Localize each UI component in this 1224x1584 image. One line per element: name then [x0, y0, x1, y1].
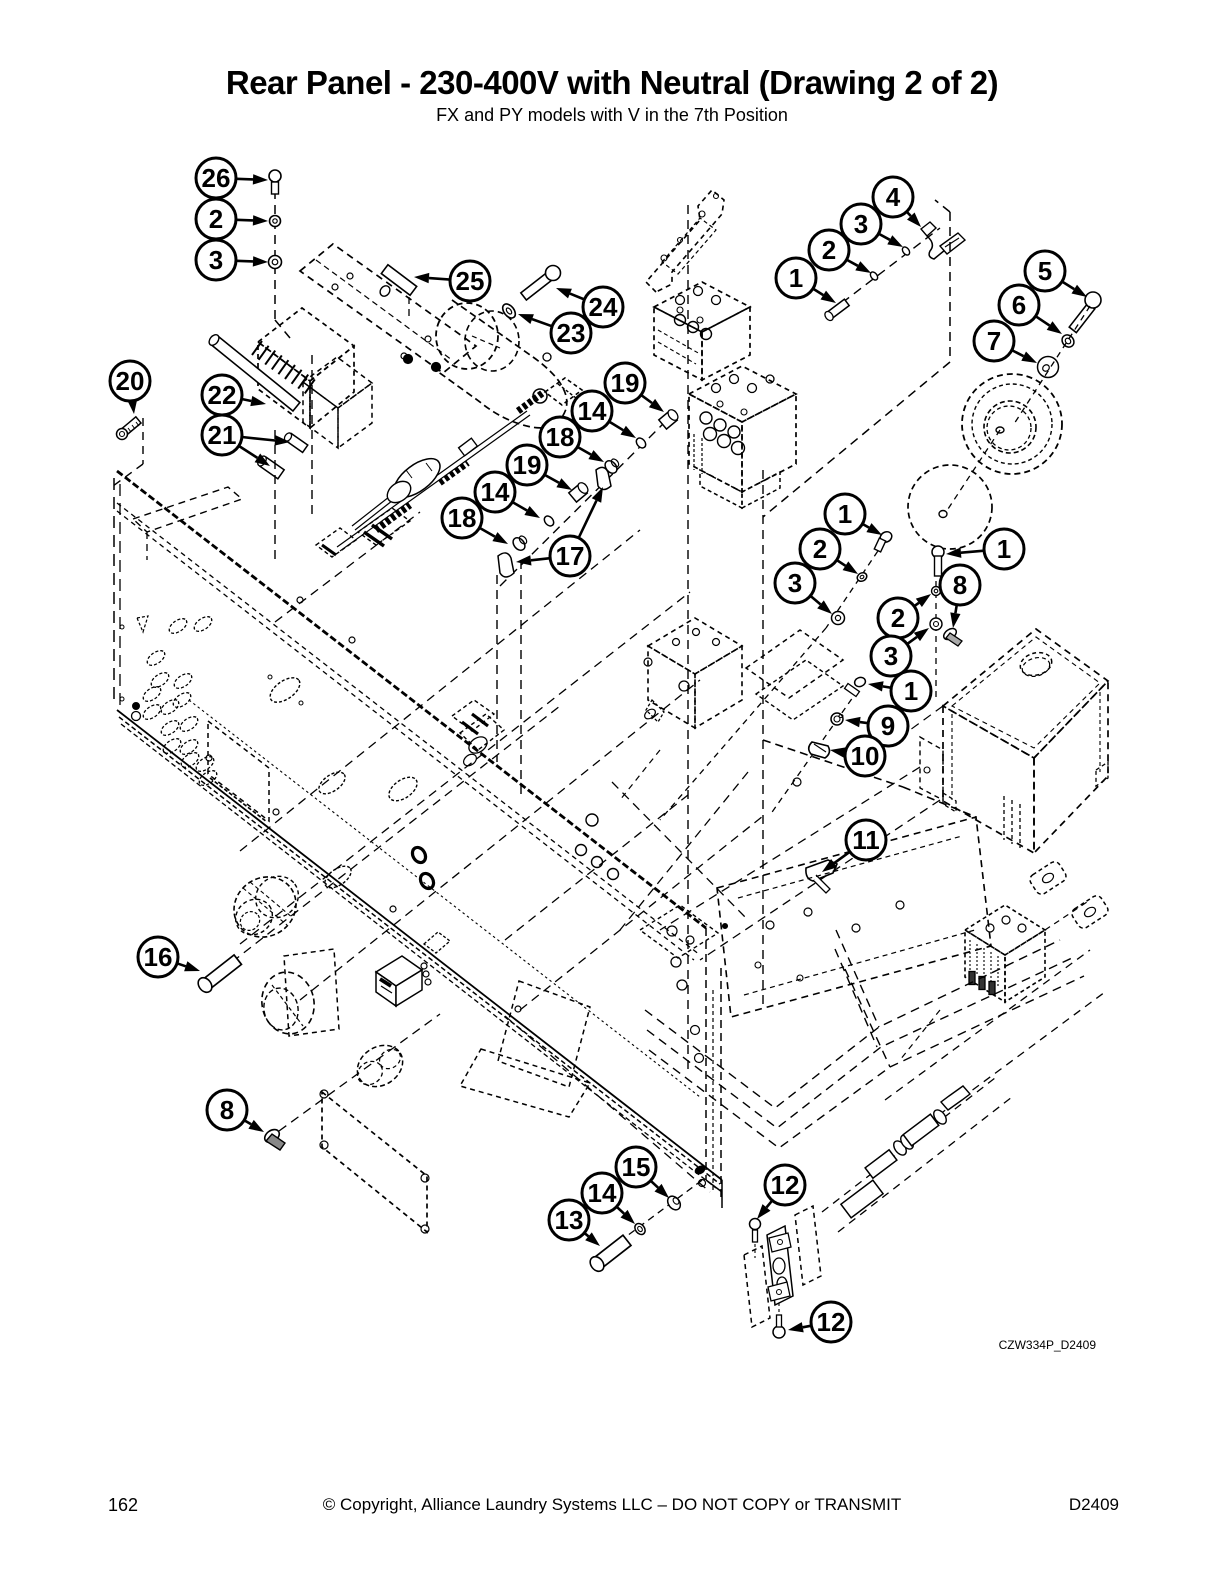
svg-text:7: 7 [987, 326, 1001, 356]
svg-text:3: 3 [884, 641, 898, 671]
svg-text:18: 18 [546, 422, 575, 452]
svg-text:8: 8 [953, 570, 967, 600]
svg-text:16: 16 [144, 942, 173, 972]
svg-text:1: 1 [789, 263, 803, 293]
svg-text:162: 162 [108, 1495, 138, 1515]
svg-text:D2409: D2409 [1069, 1495, 1119, 1514]
svg-text:FX and PY models with V in the: FX and PY models with V in the 7th Posit… [436, 105, 788, 125]
svg-text:22: 22 [208, 380, 237, 410]
svg-text:2: 2 [813, 534, 827, 564]
svg-text:2: 2 [209, 204, 223, 234]
svg-text:11: 11 [852, 825, 880, 855]
svg-text:14: 14 [578, 396, 607, 426]
svg-text:5: 5 [1038, 256, 1052, 286]
svg-text:17: 17 [556, 541, 585, 571]
svg-text:26: 26 [202, 163, 231, 193]
svg-text:19: 19 [611, 368, 640, 398]
svg-text:3: 3 [854, 209, 868, 239]
svg-text:21: 21 [208, 420, 237, 450]
svg-text:12: 12 [817, 1307, 846, 1337]
svg-text:19: 19 [513, 450, 542, 480]
svg-text:10: 10 [851, 741, 880, 771]
svg-text:8: 8 [220, 1095, 234, 1125]
svg-text:12: 12 [771, 1170, 800, 1200]
svg-text:14: 14 [588, 1178, 617, 1208]
svg-text:1: 1 [997, 534, 1011, 564]
svg-text:18: 18 [448, 503, 477, 533]
svg-text:Rear Panel - 230-400V with Neu: Rear Panel - 230-400V with Neutral (Draw… [226, 64, 998, 101]
svg-text:3: 3 [788, 568, 802, 598]
svg-text:15: 15 [622, 1152, 651, 1182]
svg-text:9: 9 [881, 711, 895, 741]
svg-text:CZW334P_D2409: CZW334P_D2409 [999, 1338, 1097, 1352]
svg-text:1: 1 [904, 676, 918, 706]
svg-text:14: 14 [481, 477, 510, 507]
svg-text:24: 24 [589, 292, 618, 322]
svg-text:6: 6 [1012, 290, 1026, 320]
svg-text:4: 4 [886, 182, 901, 212]
svg-text:25: 25 [456, 266, 485, 296]
svg-text:3: 3 [209, 245, 223, 275]
svg-text:© Copyright, Alliance Laundry: © Copyright, Alliance Laundry Systems LL… [323, 1495, 901, 1514]
svg-text:1: 1 [838, 499, 852, 529]
svg-text:20: 20 [116, 366, 145, 396]
svg-text:2: 2 [822, 235, 836, 265]
svg-text:23: 23 [557, 318, 586, 348]
svg-text:13: 13 [555, 1205, 584, 1235]
svg-text:2: 2 [891, 603, 905, 633]
